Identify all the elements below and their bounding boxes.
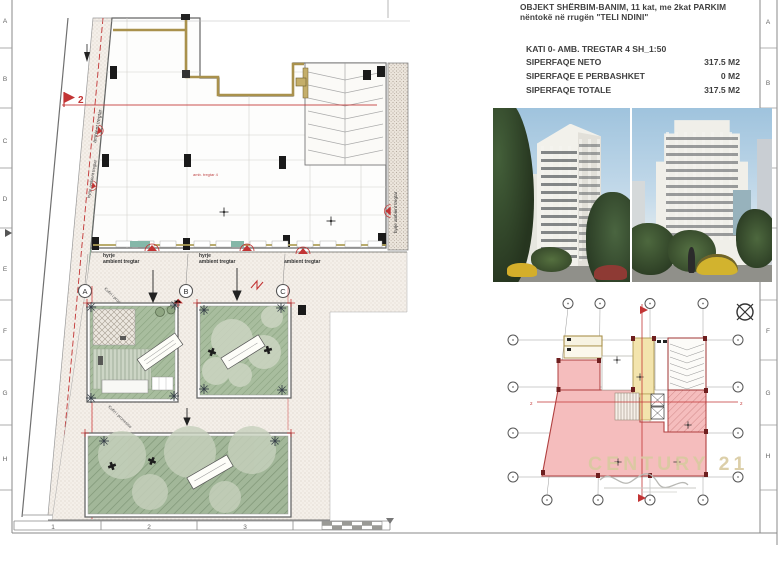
- courtyard-3: [85, 426, 291, 517]
- area-value: 317.5 M2: [704, 57, 740, 67]
- svg-text:G: G: [2, 390, 7, 397]
- svg-text:B: B: [3, 76, 7, 83]
- area-row: SIPERFAQE TOTALE 317.5 M2: [526, 85, 740, 95]
- svg-text:1: 1: [51, 524, 55, 531]
- century21-watermark: CENTURY 21: [588, 453, 748, 475]
- key-plan: 2 2 CENTURY 21: [508, 299, 753, 506]
- svg-text:ambient tregtar: ambient tregtar: [199, 259, 235, 265]
- bush: [531, 247, 572, 271]
- red-car: [594, 265, 627, 281]
- render-photo-right: [632, 108, 772, 282]
- svg-text:A: A: [3, 18, 8, 25]
- svg-text:2: 2: [740, 401, 743, 406]
- svg-text:H: H: [766, 453, 771, 460]
- svg-text:E: E: [3, 266, 8, 273]
- render-photo-left: [493, 108, 630, 282]
- svg-text:B: B: [183, 287, 188, 296]
- right-sidewalk-strip: [388, 63, 408, 250]
- svg-text:C: C: [3, 138, 8, 145]
- svg-text:F: F: [766, 328, 770, 335]
- sheet-subtitle: KATI 0- AMB. TREGTAR 4 SH_1:50: [526, 44, 666, 54]
- svg-text:ambient tregtar: ambient tregtar: [284, 259, 320, 265]
- yellow-car: [507, 263, 537, 277]
- drawing-sheet: AB CD EF GH AB CD EF GH 1 2 3: [0, 0, 780, 580]
- key-stair: [668, 338, 706, 390]
- elevators: [651, 394, 664, 419]
- project-title-line1: OBJEKT SHËRBIM-BANIM, 11 kat, me 2kat PA…: [520, 2, 752, 12]
- area-label: SIPERFAQE TOTALE: [526, 85, 611, 95]
- ramp-block: [303, 63, 386, 165]
- tree: [736, 209, 772, 268]
- section-flag-label: 2: [78, 95, 84, 106]
- right-entry-label: hyrje ambient tregtar: [393, 191, 398, 233]
- svg-text:H: H: [3, 456, 8, 463]
- svg-text:G: G: [765, 390, 770, 397]
- area-row: SIPERFAQE NETO 317.5 M2: [526, 57, 740, 67]
- title-block: OBJEKT SHËRBIM-BANIM, 11 kat, me 2kat PA…: [520, 2, 752, 22]
- svg-text:B: B: [766, 80, 770, 87]
- left-ruler: AB CD EF GH: [2, 18, 7, 463]
- area-value: 317.5 M2: [704, 85, 740, 95]
- svg-text:F: F: [3, 328, 7, 335]
- left-center-arrow-icon: [5, 229, 12, 237]
- pedestrian: [688, 247, 695, 273]
- svg-text:D: D: [3, 196, 8, 203]
- area-note: amb. tregtar 4: [193, 172, 219, 177]
- area-row: SIPERFAQE E PERBASHKET 0 M2: [526, 71, 740, 81]
- project-title-line2: nëntokë në rrugën "TELI NDINI": [520, 12, 752, 22]
- svg-text:ambient tregtar: ambient tregtar: [103, 259, 139, 265]
- window-grid: [666, 132, 739, 240]
- area-label: SIPERFAQE E PERBASHKET: [526, 71, 645, 81]
- balcony-rows: [541, 146, 577, 261]
- main-floor-plan: 2: [22, 0, 410, 520]
- area-label: SIPERFAQE NETO: [526, 57, 601, 67]
- svg-text:2: 2: [147, 524, 151, 531]
- courtyard-2: [197, 303, 291, 398]
- svg-text:A: A: [82, 287, 87, 296]
- svg-text:A: A: [766, 19, 771, 26]
- courtyard-1: [86, 300, 183, 403]
- svg-text:3: 3: [243, 524, 247, 531]
- svg-text:2: 2: [530, 401, 533, 406]
- svg-text:C: C: [280, 287, 286, 296]
- area-value: 0 M2: [721, 71, 740, 81]
- north-symbol-icon: [737, 304, 753, 320]
